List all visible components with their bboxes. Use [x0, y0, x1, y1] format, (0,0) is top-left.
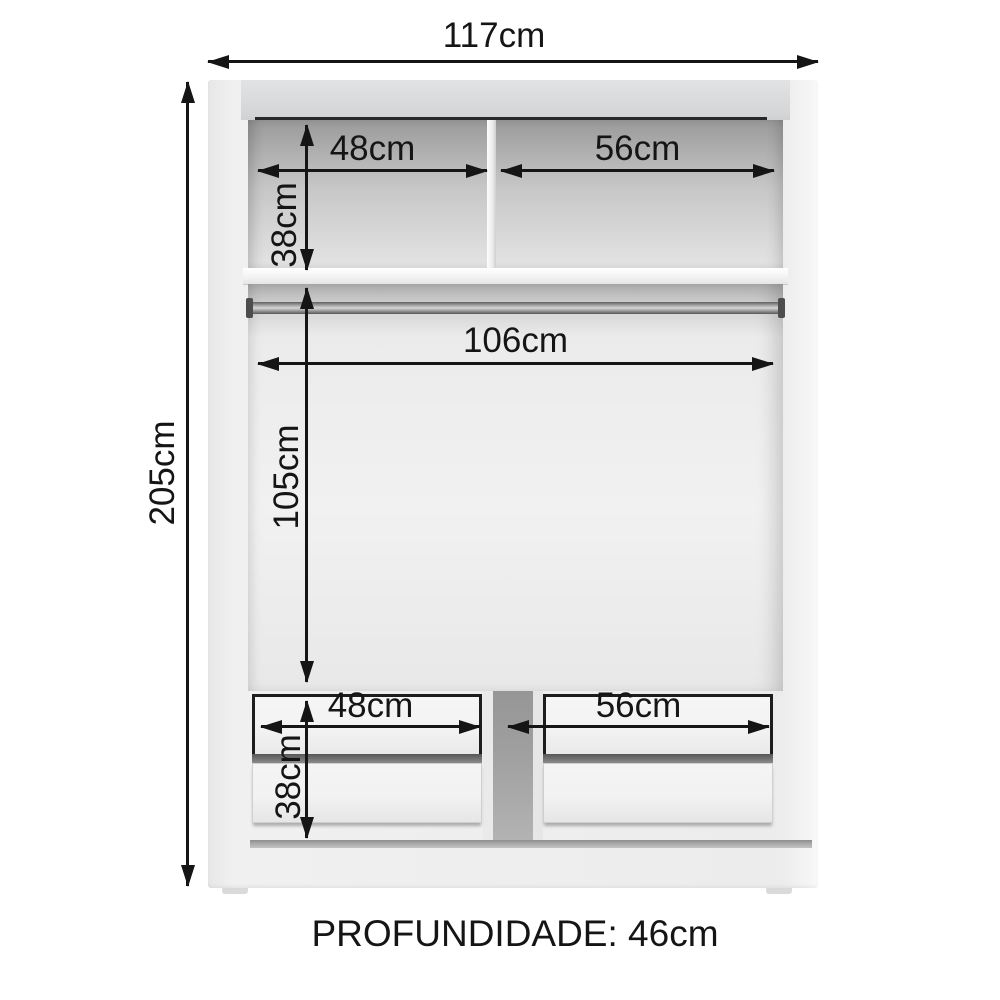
dim-arrow-rod-width [258, 362, 773, 365]
wardrobe-foot-left [222, 888, 248, 894]
drawer-gap-shadow-right [543, 754, 773, 763]
dim-label-overall-height: 205cm [145, 413, 181, 533]
wardrobe-foot-right [766, 888, 792, 894]
shelf-board [243, 268, 788, 285]
rod-bracket-left [246, 298, 253, 318]
dim-arrow-overall-height [186, 82, 189, 886]
dim-label-drawer-height: 38cm [271, 717, 307, 837]
rod-bracket-right [778, 298, 785, 318]
drawer-bottom-right [543, 763, 773, 823]
dim-label-rod-width: 106cm [258, 321, 773, 361]
kick-plate [250, 840, 812, 848]
wardrobe-top-panel-edge [241, 80, 790, 120]
upper-shelf-divider [487, 120, 496, 268]
wardrobe-dimension-diagram: { "annotations": { "overall_width": "117… [0, 0, 1000, 1000]
dim-label-shelf-right-width: 56cm [501, 129, 774, 169]
dim-label-hanging-height: 105cm [269, 417, 305, 537]
dim-label-overall-width: 117cm [189, 16, 799, 56]
dim-arrow-overall-width [208, 60, 818, 63]
dim-label-drawer-right-width: 56cm [508, 686, 769, 726]
hanging-rod [246, 302, 785, 314]
dim-label-shelf-left-width: 48cm [258, 129, 487, 169]
upper-back-edge-line [255, 117, 767, 120]
depth-note: PROFUNDIDADE: 46cm [215, 911, 815, 957]
dim-label-shelf-height: 38cm [267, 165, 303, 285]
dim-arrow-shelf-right-width [501, 169, 774, 172]
